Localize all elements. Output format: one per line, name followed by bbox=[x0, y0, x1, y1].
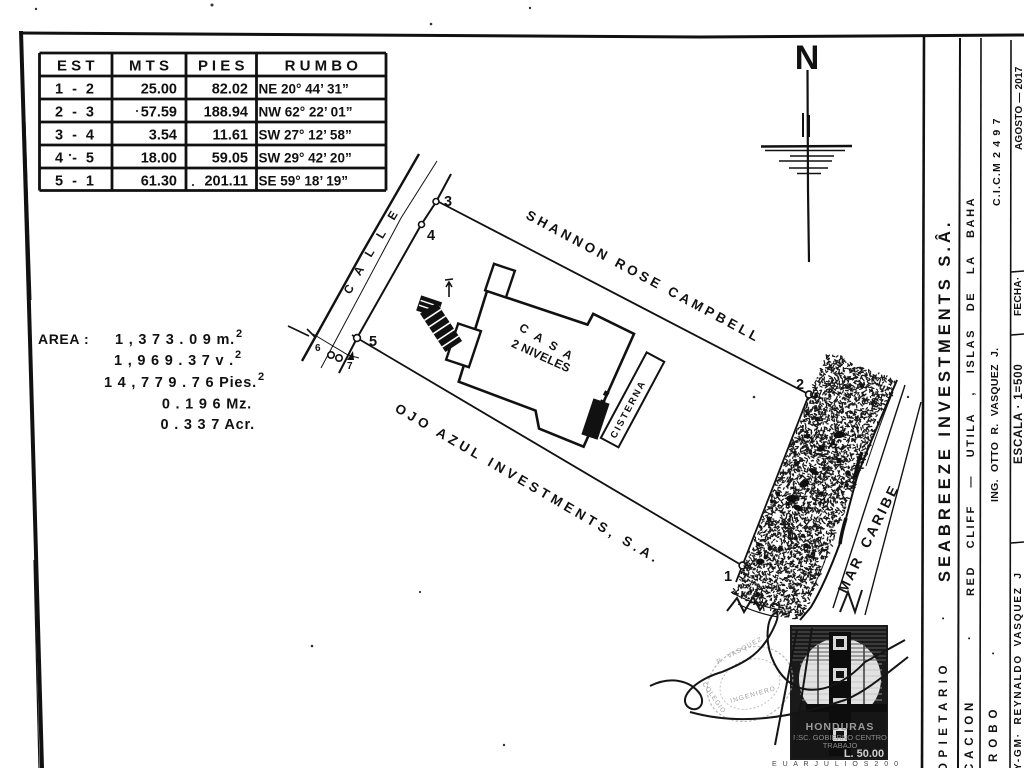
svg-text:1 , 3 7 3 . 0 9 m.: 1 , 3 7 3 . 0 9 m. bbox=[115, 332, 235, 348]
svg-text:NW 62° 22’ 01”: NW 62° 22’ 01” bbox=[259, 105, 353, 120]
svg-text:1 , 9 6 9 . 3 7 v .: 1 , 9 6 9 . 3 7 v . bbox=[114, 353, 234, 369]
svg-text:·: · bbox=[938, 616, 950, 620]
svg-text:2 - 3: 2 - 3 bbox=[55, 105, 97, 121]
svg-text:0 . 1 9 6 Mz.: 0 . 1 9 6 Mz. bbox=[162, 397, 252, 413]
svg-text:RED CLIFF — UTILA , ISLAS: RED CLIFF — UTILA , ISLAS DE LA BAHA bbox=[965, 196, 977, 596]
svg-text:3.54: 3.54 bbox=[149, 128, 177, 144]
svg-text:AREA :: AREA : bbox=[38, 331, 89, 347]
svg-text:NE 20° 44’ 31”: NE 20° 44’ 31” bbox=[259, 82, 349, 97]
svg-text:2: 2 bbox=[236, 328, 243, 340]
svg-text:3: 3 bbox=[444, 194, 452, 210]
svg-text:1 4 , 7 7 9 . 7 6 Pies.: 1 4 , 7 7 9 . 7 6 Pies. bbox=[104, 375, 257, 391]
svg-text:E S T: E S T bbox=[57, 58, 95, 75]
svg-text:P I E S: P I E S bbox=[198, 58, 244, 75]
svg-text:1 - 2: 1 - 2 bbox=[55, 82, 97, 98]
svg-text:·: · bbox=[988, 651, 1000, 655]
svg-text:7: 7 bbox=[347, 361, 353, 372]
svg-text:0 . 3 3 7 Acr.: 0 . 3 3 7 Acr. bbox=[161, 417, 256, 433]
svg-text:SE 59° 18’ 19”: SE 59° 18’ 19” bbox=[259, 174, 348, 189]
svg-text:57.59: 57.59 bbox=[141, 105, 177, 121]
svg-text:FECHA·: FECHA· bbox=[1013, 276, 1024, 316]
svg-text:ING. OTTO R. VASQUEZ J.: ING. OTTO R. VASQUEZ J. bbox=[989, 348, 1001, 502]
svg-text:E U A R J U L I O S 2 0 0: E U A R J U L I O S 2 0 0 bbox=[772, 761, 900, 768]
svg-text:4 - 5: 4 - 5 bbox=[55, 151, 97, 167]
svg-text:59.05: 59.05 bbox=[212, 151, 248, 167]
svg-text:AGOSTO — 2017: AGOSTO — 2017 bbox=[1014, 66, 1024, 150]
svg-text:25.00: 25.00 bbox=[141, 82, 177, 98]
svg-text:SW 27° 12’ 58”: SW 27° 12’ 58” bbox=[259, 128, 352, 143]
svg-text:L. 50.00: L. 50.00 bbox=[844, 748, 884, 760]
svg-text:SEABREEZE INVESTMENTS S.Â.: SEABREEZE INVESTMENTS S.Â. bbox=[935, 219, 954, 582]
svg-text:1: 1 bbox=[724, 569, 732, 585]
svg-text:ESCALA · 1=500: ESCALA · 1=500 bbox=[1013, 363, 1024, 464]
svg-text:188.94: 188.94 bbox=[204, 105, 248, 121]
svg-text:11.61: 11.61 bbox=[213, 128, 249, 144]
svg-text:5: 5 bbox=[369, 334, 377, 350]
svg-text:2: 2 bbox=[235, 349, 242, 361]
svg-text:ROBO: ROBO bbox=[988, 704, 1000, 763]
svg-text:·: · bbox=[964, 636, 976, 640]
svg-text:HONDURAS: HONDURAS bbox=[806, 721, 875, 733]
svg-text:C.I.C.M 2 4 9 7: C.I.C.M 2 4 9 7 bbox=[991, 117, 1003, 206]
svg-text:M T S: M T S bbox=[129, 58, 169, 75]
svg-text:OPIETARIO: OPIETARIO bbox=[938, 660, 950, 768]
svg-text:61.30: 61.30 bbox=[141, 174, 177, 190]
svg-text:R U M B O: R U M B O bbox=[285, 58, 359, 75]
svg-text:4: 4 bbox=[427, 228, 435, 244]
svg-text:5 - 1: 5 - 1 bbox=[55, 174, 97, 190]
svg-text:2: 2 bbox=[258, 371, 265, 383]
svg-text:Y-GM· REYNALDO VASQUEZ J: Y-GM· REYNALDO VASQUEZ J bbox=[1013, 571, 1024, 768]
svg-text:3 - 4: 3 - 4 bbox=[55, 128, 97, 144]
svg-text:6: 6 bbox=[315, 343, 321, 354]
svg-text:2: 2 bbox=[796, 377, 804, 393]
svg-text:SW 29° 42’ 20”: SW 29° 42’ 20” bbox=[259, 151, 352, 166]
svg-text:18.00: 18.00 bbox=[141, 151, 177, 167]
svg-text:82.02: 82.02 bbox=[212, 82, 248, 98]
svg-text:201.11: 201.11 bbox=[204, 174, 248, 190]
svg-text:CACION: CACION bbox=[964, 698, 976, 768]
